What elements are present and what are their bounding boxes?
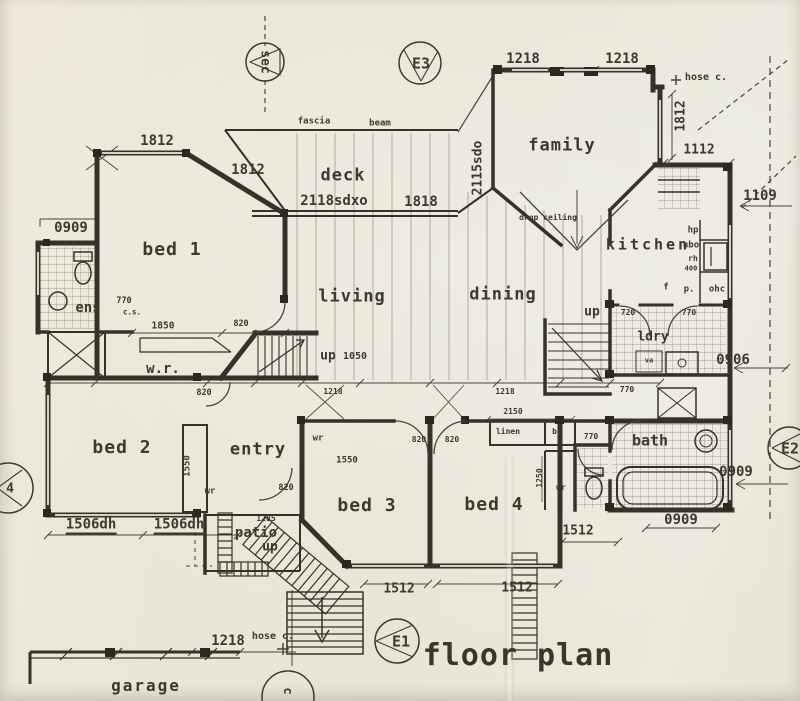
stairs: [218, 324, 609, 659]
up-label-patio: up: [262, 541, 278, 554]
rh-label: rh: [688, 255, 698, 263]
dim-820-bed3: 820: [412, 436, 426, 444]
marker-e1-label: E1: [392, 635, 410, 650]
dim-1218-family-right: 1218: [605, 52, 639, 66]
room-label-ens: ens: [75, 301, 100, 315]
up-label-living: up: [320, 350, 336, 363]
dim-1812-bed1: 1812: [140, 134, 174, 148]
dim-1218-hall-right: 1218: [495, 388, 514, 396]
drawing-title: floor plan: [423, 641, 614, 671]
dim-1506dh-right: 1506dh: [154, 518, 205, 535]
marker-c-circle: [262, 671, 314, 701]
dim-400: 400: [685, 266, 698, 273]
bc-label: bc: [552, 428, 562, 436]
dim-1812-right: 1812: [675, 100, 688, 131]
room-label-living: living: [318, 289, 385, 306]
dim-1512-bed4: 1512: [501, 582, 532, 595]
ubo-label: ubo: [683, 242, 699, 251]
dim-1112: 1112: [683, 144, 714, 157]
room-label-garage: garage: [111, 678, 181, 694]
marker-sec-label: sec: [259, 50, 272, 73]
hp-label: hp: [688, 227, 699, 236]
dim-820-entry: 820: [278, 484, 293, 493]
beam-label: beam: [369, 120, 391, 129]
dim-1812-deck: 1812: [231, 163, 265, 177]
dim-820-wr: 820: [233, 320, 248, 329]
dim-0909-ens: 0909: [54, 221, 88, 235]
dim-770-ldry: 770: [682, 309, 696, 317]
room-label-kitchen: kitchen: [606, 238, 690, 253]
light-walls: [30, 130, 730, 684]
p-label: p.: [684, 286, 695, 295]
dim-1550-bed3: 1550: [336, 457, 358, 466]
dim-1550-closet: 1550: [184, 455, 193, 477]
linen-label: linen: [496, 428, 520, 436]
ohc-label: ohc: [709, 286, 725, 295]
dim-1818: 1818: [404, 195, 438, 209]
up-label-stair: up: [584, 306, 600, 319]
dim-820-bed2: 820: [196, 389, 211, 398]
dim-1218-garage: 1218: [211, 634, 245, 648]
room-label-bed2: bed 2: [92, 439, 151, 457]
dim-1218-family-left: 1218: [506, 52, 540, 66]
dim-820-bed4: 820: [445, 436, 459, 444]
room-label-family: family: [528, 138, 595, 155]
cs-label: c.s.: [123, 308, 141, 316]
marker-e3-label: E3: [412, 57, 430, 72]
dim-1285: 1285: [256, 515, 275, 523]
hose-c-label-top: hose c.: [685, 73, 727, 83]
dim-1506dh-left: 1506dh: [66, 518, 117, 535]
dim-770-wc: 770: [584, 433, 598, 441]
dim-1109: 1109: [743, 189, 777, 203]
dim-770-hall: 770: [620, 386, 634, 394]
dim-0909-bath: 0909: [719, 465, 753, 479]
va-label: va: [645, 358, 653, 365]
marker-4-circle: [0, 463, 33, 513]
room-label-deck: deck: [321, 168, 366, 185]
marker-e2-label: E2: [781, 442, 799, 457]
room-label-dining: dining: [469, 287, 536, 304]
room-label-wr-robe: w.r.: [146, 362, 180, 376]
room-label-bath: bath: [632, 434, 668, 449]
room-label-entry: entry: [230, 442, 286, 459]
dim-720: 720: [621, 309, 635, 317]
room-label-ldry: ldry: [637, 331, 668, 344]
dim-1512-bed3: 1512: [383, 583, 414, 596]
floorplan-sheet: sec E3 E1 E2 4 c bed 1 deck family livin…: [0, 0, 800, 701]
dim-1250: 1250: [536, 468, 544, 487]
f-label: f: [663, 284, 668, 293]
wr-label-bed4: wr: [556, 484, 566, 492]
wr-label-bed2: wr: [205, 488, 216, 497]
dim-2115sdo: 2115sdo: [472, 141, 485, 196]
marker-4-label: 4: [6, 483, 14, 496]
dim-0906: 0906: [716, 353, 750, 367]
dim-2118sdxo: 2118sdxo: [300, 194, 367, 208]
hose-c-label-bottom: hose c.: [252, 632, 294, 642]
dim-2150: 2150: [503, 408, 522, 416]
fascia-label: fascia: [298, 118, 331, 127]
room-label-bed1: bed 1: [142, 241, 201, 259]
drop-ceiling-label: drop ceiling: [519, 214, 577, 222]
marker-c-label: c: [282, 687, 294, 694]
wr-label-bed3: wr: [313, 435, 324, 444]
room-label-bed4: bed 4: [464, 496, 523, 514]
dim-0909-bottom: 0909: [664, 513, 698, 527]
dim-1218-hall-left: 1218: [323, 388, 342, 396]
dim-1850: 1850: [152, 321, 175, 331]
room-label-patio: patio: [235, 526, 277, 540]
dim-1050: 1050: [343, 352, 367, 362]
room-label-bed3: bed 3: [337, 497, 396, 515]
dim-1512-right: 1512: [562, 525, 593, 538]
dim-770-ens: 770: [116, 297, 131, 306]
